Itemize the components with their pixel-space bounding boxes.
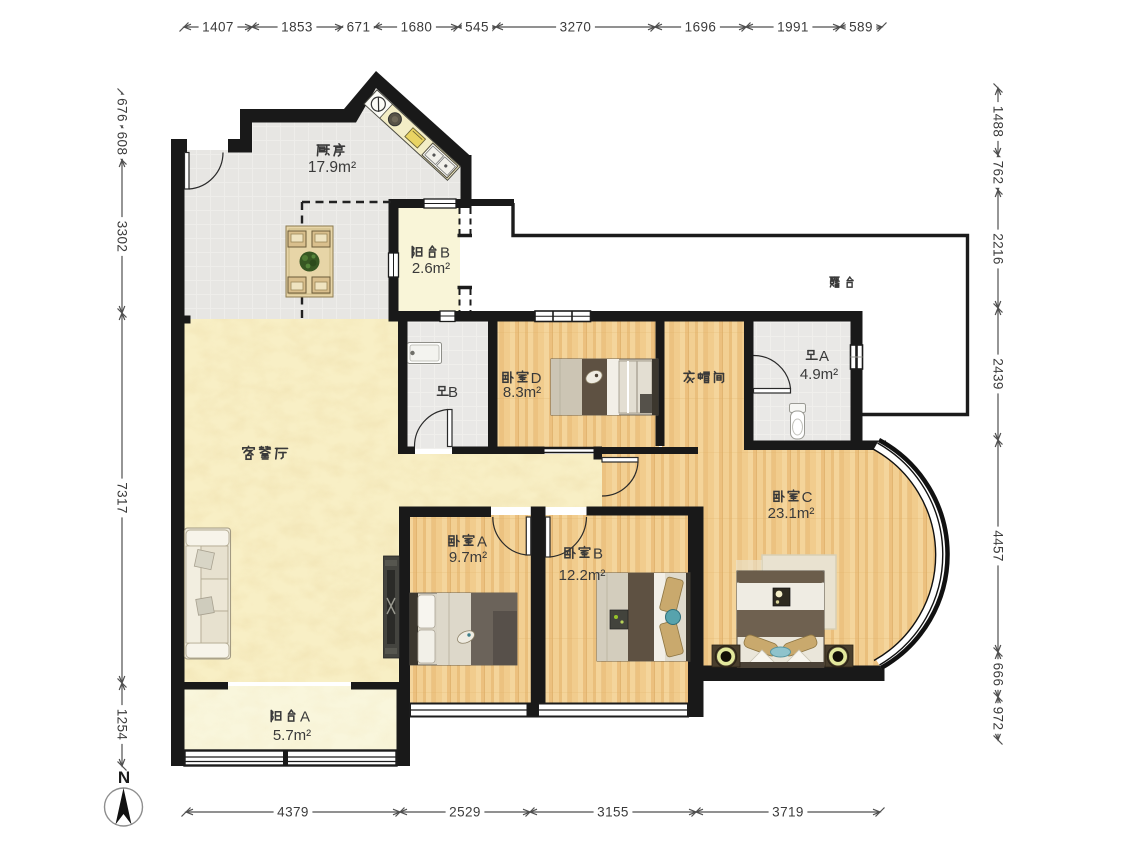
svg-text:17.9m²: 17.9m² — [308, 159, 356, 176]
svg-text:3302: 3302 — [115, 221, 130, 253]
svg-text:545: 545 — [465, 20, 489, 35]
svg-text:B: B — [448, 384, 458, 401]
svg-text:3719: 3719 — [772, 805, 804, 820]
svg-text:666: 666 — [991, 663, 1006, 687]
svg-text:1696: 1696 — [685, 20, 717, 35]
svg-text:1254: 1254 — [115, 709, 130, 741]
svg-text:2216: 2216 — [991, 233, 1006, 265]
svg-text:676: 676 — [115, 98, 130, 122]
svg-text:B: B — [593, 546, 603, 563]
svg-text:762: 762 — [991, 161, 1006, 185]
svg-text:1488: 1488 — [991, 106, 1006, 138]
svg-text:1991: 1991 — [777, 20, 809, 35]
svg-text:N: N — [118, 768, 130, 787]
svg-text:4.9m²: 4.9m² — [800, 366, 838, 383]
svg-text:B: B — [440, 245, 450, 262]
svg-text:9.7m²: 9.7m² — [449, 549, 487, 566]
svg-text:2.6m²: 2.6m² — [412, 260, 450, 277]
svg-text:C: C — [802, 489, 813, 506]
svg-text:2529: 2529 — [449, 805, 481, 820]
svg-text:5.7m²: 5.7m² — [273, 727, 311, 744]
svg-text:A: A — [477, 534, 487, 551]
svg-text:8.3m²: 8.3m² — [503, 384, 541, 401]
svg-text:4457: 4457 — [991, 530, 1006, 562]
svg-text:A: A — [819, 348, 829, 365]
svg-text:1853: 1853 — [281, 20, 313, 35]
svg-text:972: 972 — [991, 707, 1006, 731]
svg-text:1680: 1680 — [401, 20, 433, 35]
svg-text:23.1m²: 23.1m² — [768, 505, 815, 522]
svg-text:12.2m²: 12.2m² — [559, 567, 606, 584]
svg-text:7317: 7317 — [115, 482, 130, 514]
svg-text:3155: 3155 — [597, 805, 629, 820]
svg-text:608: 608 — [115, 132, 130, 156]
svg-text:589: 589 — [849, 20, 873, 35]
svg-text:3270: 3270 — [560, 20, 592, 35]
svg-text:1407: 1407 — [202, 20, 234, 35]
svg-text:A: A — [300, 709, 310, 726]
svg-text:2439: 2439 — [991, 358, 1006, 390]
svg-text:671: 671 — [347, 20, 371, 35]
svg-text:4379: 4379 — [277, 805, 309, 820]
